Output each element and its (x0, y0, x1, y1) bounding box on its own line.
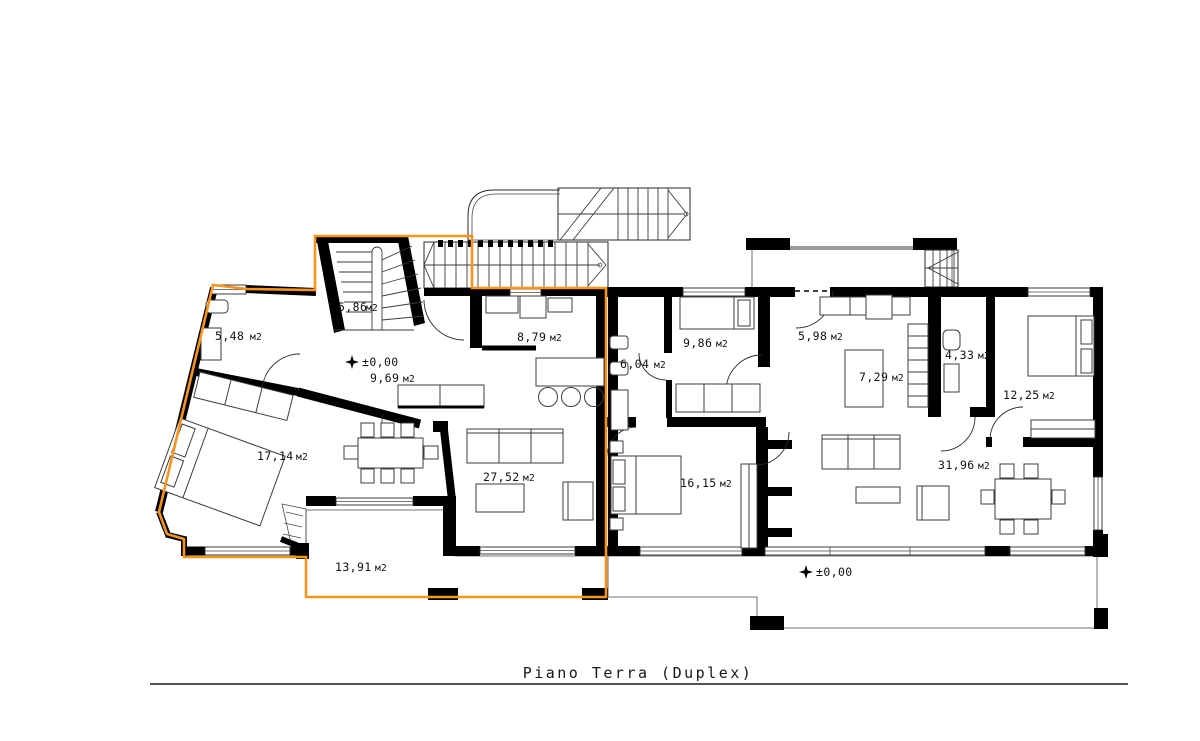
svg-text:м2: м2 (366, 303, 378, 314)
svg-text:м2: м2 (550, 333, 562, 344)
closet (741, 464, 757, 548)
kitchen-island (536, 358, 604, 407)
kitchen-counter (820, 295, 910, 319)
closet (1031, 420, 1095, 438)
svg-text:м2: м2 (654, 360, 666, 371)
svg-text:27,52: 27,52 (483, 470, 520, 484)
armchair (917, 486, 949, 520)
area-label-terrace-duplex: 13,91м2 (335, 560, 387, 574)
area-label-stair-room: 5,86м2 (338, 300, 378, 314)
svg-text:5,48: 5,48 (215, 329, 244, 343)
svg-text:6,04: 6,04 (620, 357, 649, 371)
pantry-shelves (908, 324, 928, 407)
sofa (822, 435, 900, 469)
svg-text:16,15: 16,15 (680, 476, 717, 490)
elevation-value: ±0,00 (362, 355, 399, 369)
area-label-bath-duplex: 5,48м2 (215, 329, 262, 343)
kitchen-counter (398, 385, 484, 407)
elevation-value: ±0,00 (816, 565, 853, 579)
sofa (467, 429, 563, 463)
area-label-bath-2: 6,04м2 (620, 357, 666, 371)
area-label-bedroom-3: 12,25м2 (1003, 388, 1055, 402)
area-label-bath-3: 4,33м2 (945, 348, 990, 362)
bed (610, 441, 681, 530)
plan-title: Piano Terra (Duplex) (523, 664, 754, 682)
svg-text:5,86: 5,86 (338, 300, 367, 314)
svg-text:9,69: 9,69 (370, 371, 399, 385)
svg-text:м2: м2 (978, 461, 990, 472)
svg-text:м2: м2 (831, 332, 843, 343)
floor-plan-page: ±0,00 ±0,00 5,86м2 5,48м2 17,14м2 9,69м2… (0, 0, 1200, 741)
svg-text:м2: м2 (716, 339, 728, 350)
area-label-living-duplex: 27,52м2 (483, 470, 535, 484)
area-label-kitchen-2: 7,29м2 (859, 370, 904, 384)
svg-text:13,91: 13,91 (335, 560, 372, 574)
closet (676, 384, 760, 412)
drawing-title-block: Piano Terra (Duplex) (150, 664, 1128, 684)
exterior-stairs (424, 188, 690, 288)
svg-text:17,14: 17,14 (257, 449, 294, 463)
entry-porch (746, 238, 958, 287)
elevation-marker: ±0,00 (799, 565, 853, 579)
bed (1028, 316, 1094, 376)
svg-text:9,86: 9,86 (683, 336, 712, 350)
svg-text:8,79: 8,79 (517, 330, 546, 344)
bed (680, 297, 754, 329)
elevation-marker: ±0,00 (345, 355, 399, 369)
wardrobe (486, 296, 572, 318)
svg-text:м2: м2 (892, 373, 904, 384)
area-label-bedroom-4: 16,15м2 (680, 476, 732, 490)
area-label-bedroom-2: 9,86м2 (683, 336, 728, 350)
svg-text:м2: м2 (720, 479, 732, 490)
svg-text:м2: м2 (1043, 391, 1055, 402)
svg-text:7,29: 7,29 (859, 370, 888, 384)
area-label-kitchen-duplex: 8,79м2 (517, 330, 562, 344)
area-label-living-2: 31,96м2 (938, 458, 990, 472)
coffee-table (476, 484, 524, 512)
coffee-table (856, 487, 900, 503)
svg-text:4,33: 4,33 (945, 348, 974, 362)
bed (155, 418, 286, 526)
svg-text:5,98: 5,98 (798, 329, 827, 343)
terrace-deck-hatching (281, 504, 1108, 630)
svg-text:м2: м2 (296, 452, 308, 463)
area-label-bedroom-duplex: 17,14м2 (257, 449, 308, 463)
area-label-hall-duplex: 9,69м2 (370, 371, 415, 385)
armchair (563, 482, 593, 520)
svg-text:м2: м2 (375, 563, 387, 574)
area-label-entry-2: 5,98м2 (798, 329, 843, 343)
floor-plan-drawing: ±0,00 ±0,00 5,86м2 5,48м2 17,14м2 9,69м2… (0, 0, 1200, 741)
svg-text:м2: м2 (403, 374, 415, 385)
dining-table (344, 423, 438, 483)
svg-text:м2: м2 (250, 332, 262, 343)
svg-text:м2: м2 (523, 473, 535, 484)
svg-text:31,96: 31,96 (938, 458, 975, 472)
dining-table (981, 464, 1065, 534)
svg-text:12,25: 12,25 (1003, 388, 1040, 402)
svg-text:м2: м2 (978, 351, 990, 362)
